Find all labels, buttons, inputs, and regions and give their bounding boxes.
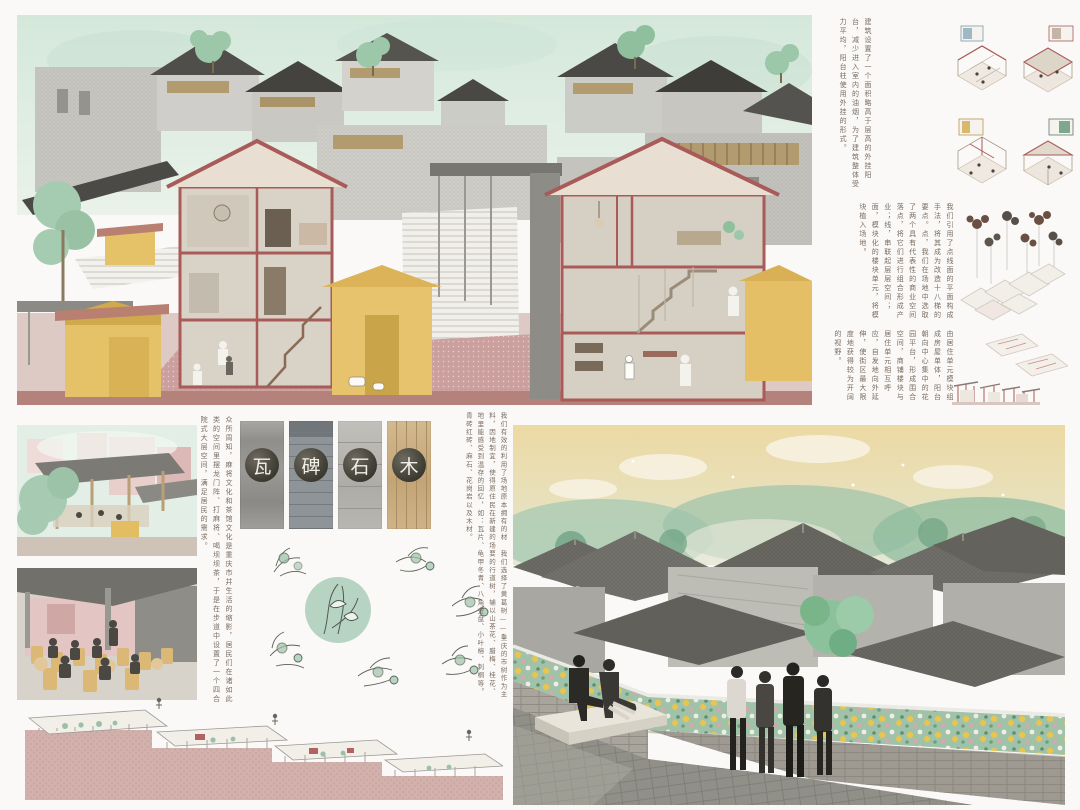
street-elevation-diagram bbox=[950, 372, 1042, 408]
material-strip-wood: 木 bbox=[387, 421, 431, 529]
unit-axon-3 bbox=[953, 117, 1011, 201]
teahouse-interior-render bbox=[17, 568, 197, 700]
main-sectional-perspective bbox=[17, 15, 812, 405]
note-teahouse: 众所周知，麻将文化和茶馆文化是重庆市井生活的缩影，居民们在诸如此类的空间里摆龙门… bbox=[199, 416, 235, 704]
note-materials: 我们有效的利用了场地原本拥有的材料，因地制宜，使得原住民在新建的场地里能感受到温… bbox=[436, 412, 508, 554]
material-strip-stele: 碑 bbox=[289, 421, 333, 529]
hillside-section-drawing bbox=[17, 688, 503, 805]
unit-axon-2 bbox=[1019, 24, 1077, 108]
material-strips: 瓦 碑 石 木 bbox=[240, 421, 436, 529]
section-house-left bbox=[167, 141, 347, 387]
section-house-right bbox=[545, 139, 779, 400]
architecture-presentation-board: { "palette":{ "board_bg":"#faf9f7","sky_… bbox=[0, 0, 1080, 810]
note-composition: 我们引用了点线面的平面构成手法，将其成为改造十八梯的要点。点，我们在场地中选取了… bbox=[832, 203, 956, 322]
material-medallion-tile: 瓦 bbox=[245, 448, 279, 482]
pavilion-exterior-render bbox=[17, 425, 197, 556]
hillside-village-section-drawing bbox=[17, 15, 812, 405]
unit-axon-1 bbox=[953, 24, 1011, 108]
material-medallion-stone: 石 bbox=[343, 448, 377, 482]
exploded-tree-site-axon bbox=[955, 208, 1067, 330]
unit-axon-4 bbox=[1019, 117, 1077, 201]
note-units: 由居住单元模块组成房屋单体，阳台朝向中心集中的花园平台，形成围合空间，商铺楼块与… bbox=[832, 330, 956, 406]
unit-axonometric-diagrams bbox=[953, 24, 1077, 202]
material-strip-stone: 石 bbox=[338, 421, 382, 529]
note-planting: 我们选择了黄葛树——重庆的市树作为主要的行道树，辅以山茶花、腊梅、桂花、龟甲冬青… bbox=[452, 550, 508, 702]
note-balcony: 建筑设置了一个面积略高于层高的外挂阳台，减少进入室内的油烟，为了建筑整体受力平均… bbox=[832, 18, 874, 194]
material-medallion-stele: 碑 bbox=[294, 448, 328, 482]
rooftop-terrace-render bbox=[513, 425, 1065, 805]
material-strip-tile: 瓦 bbox=[240, 421, 284, 529]
material-medallion-wood: 木 bbox=[392, 448, 426, 482]
site-mass bbox=[961, 264, 1065, 320]
